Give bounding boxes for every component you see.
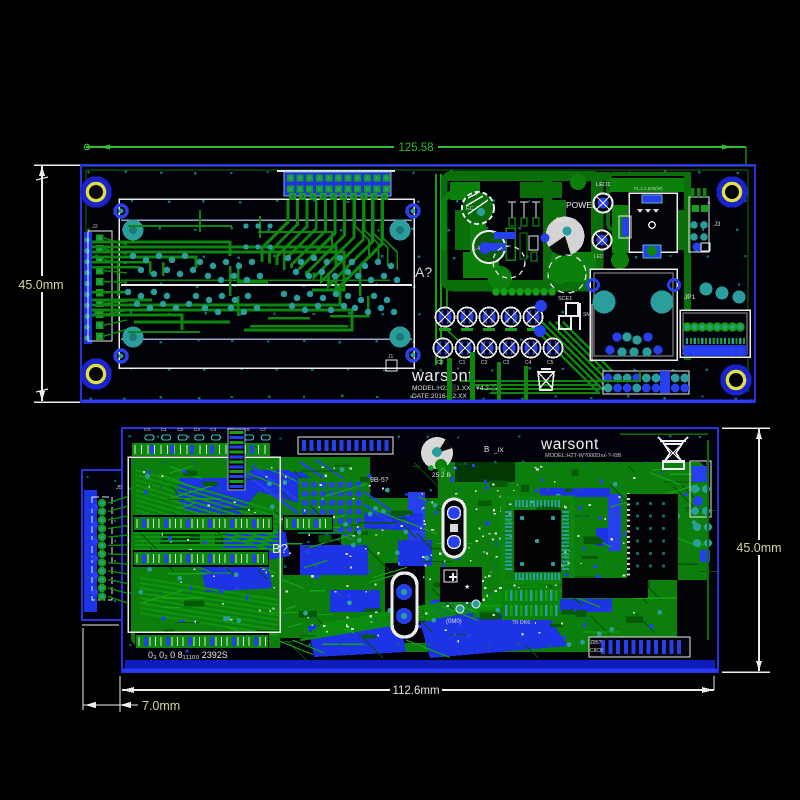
svg-text:?0 DK6: ?0 DK6 [512, 620, 530, 626]
svg-text:J1: J1 [388, 354, 394, 360]
svg-text:(0M0): (0M0) [446, 619, 462, 625]
svg-text:C8C8: C8C8 [590, 648, 603, 654]
svg-text:25 2 B: 25 2 B [432, 472, 451, 479]
svg-text:EC: EC [466, 206, 474, 212]
svg-text:SCE1: SCE1 [558, 296, 572, 302]
svg-text:MODEL:H21-░1.XX8 ¥4.2-░A: MODEL:H21-░1.XX8 ¥4.2-░A [412, 384, 501, 392]
svg-text:L4: L4 [474, 246, 480, 252]
svg-text:LED: LED [594, 254, 604, 260]
svg-text:_IX: _IX [493, 447, 504, 454]
svg-text:C1: C1 [459, 360, 466, 366]
svg-text:C4: C4 [210, 427, 216, 433]
svg-text:warsont: warsont [411, 367, 473, 385]
svg-text:7.0mm: 7.0mm [142, 699, 180, 713]
svg-text:#1.3.1.505(W): #1.3.1.505(W) [634, 186, 663, 191]
svg-text:C0: C0 [437, 360, 444, 366]
svg-text:LED1: LED1 [596, 182, 611, 188]
svg-text:J2: J2 [92, 224, 98, 230]
svg-text:B: B [484, 445, 489, 454]
svg-text:J5: J5 [116, 485, 122, 491]
svg-text:B?: B? [272, 541, 288, 556]
svg-text:Z85?: Z85? [590, 640, 602, 646]
svg-text:0₃ 0₂ 0 8₁₁₁₀₀ 2392S: 0₃ 0₂ 0 8₁₁₁₀₀ 2392S [148, 650, 228, 660]
svg-text:C4: C4 [525, 360, 532, 366]
svg-text:C2: C2 [481, 360, 488, 366]
svg-text:DC2: DC2 [556, 218, 569, 224]
svg-text:C0: C0 [144, 427, 150, 433]
svg-text:112.6mm: 112.6mm [392, 685, 439, 697]
svg-text:JP1: JP1 [684, 294, 696, 301]
svg-text:125.58: 125.58 [398, 142, 433, 154]
svg-text:★: ★ [464, 583, 470, 591]
svg-text:J3: J3 [714, 222, 721, 228]
svg-text:warsont: warsont [540, 436, 599, 453]
svg-text:9B-5?: 9B-5? [370, 477, 389, 484]
svg-text:45.0mm: 45.0mm [736, 541, 781, 555]
svg-text:DATE:2016-░2.XX: DATE:2016-░2.XX [412, 392, 467, 400]
svg-text:C2: C2 [177, 427, 183, 433]
svg-text:C5: C5 [547, 360, 554, 366]
svg-text:C3: C3 [194, 427, 200, 433]
svg-text:C3: C3 [503, 360, 510, 366]
svg-text:MODEL:H2T-W?000Dxx-?-/0B: MODEL:H2T-W?000Dxx-?-/0B [545, 453, 621, 459]
svg-text:45.0mm: 45.0mm [18, 278, 63, 292]
svg-text:SM: SM [583, 312, 591, 318]
svg-text:C1: C1 [161, 427, 167, 433]
svg-text:C7: C7 [260, 427, 266, 433]
svg-text:A?: A? [415, 264, 432, 280]
